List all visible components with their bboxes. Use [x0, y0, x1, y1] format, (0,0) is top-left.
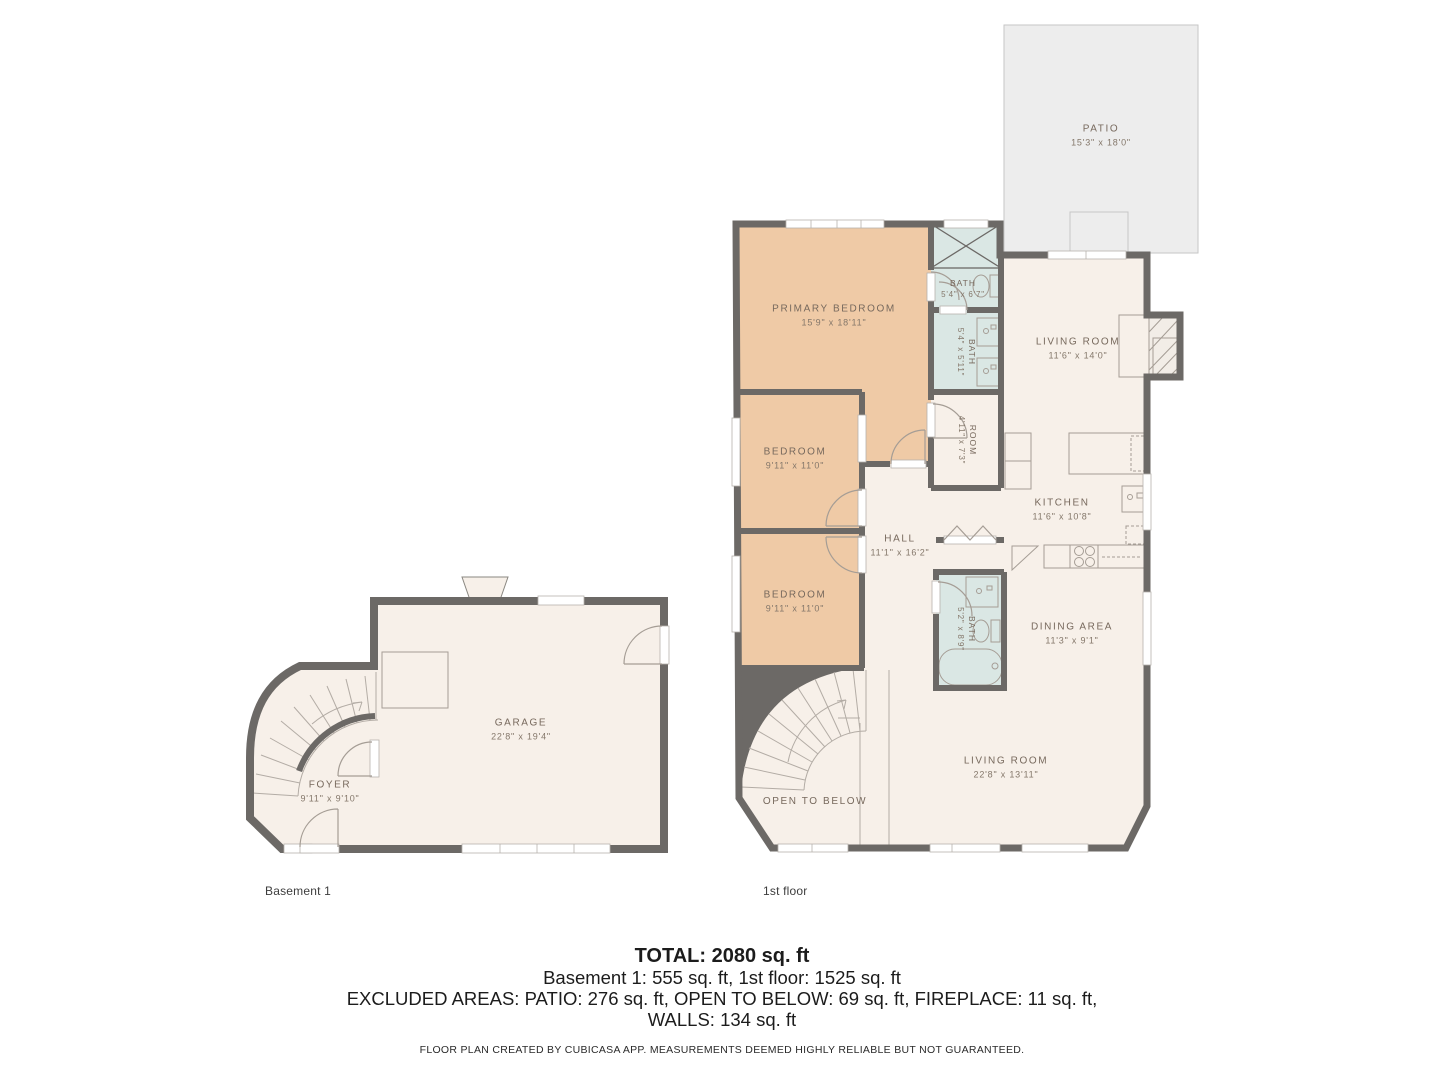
room-name: OPEN TO BELOW	[763, 796, 867, 807]
room-name: BATH	[967, 616, 977, 642]
label-bath-mid: BATH 5'4" x 5'11"	[955, 328, 977, 376]
label-bedroom-low: BEDROOM 9'11" x 11'0"	[764, 590, 827, 615]
room-dims: 5'4" x 6'7"	[941, 290, 985, 300]
label-bath-top: BATH 5'4" x 6'7"	[941, 278, 985, 300]
room-dims: 11'6" x 14'0"	[1036, 350, 1120, 361]
label-garage: GARAGE 22'8" x 19'4"	[491, 718, 551, 743]
room-dims: 9'11" x 11'0"	[764, 460, 827, 471]
summary-footnote: FLOOR PLAN CREATED BY CUBICASA APP. MEAS…	[0, 1044, 1440, 1056]
room-name: KITCHEN	[1034, 498, 1089, 509]
room-name: BEDROOM	[764, 447, 827, 458]
caption-first-floor: 1st floor	[763, 884, 808, 898]
room-dims: 15'3" x 18'0"	[1071, 137, 1131, 148]
label-dining: DINING AREA 11'3" x 9'1"	[1031, 622, 1113, 647]
chimney-shape	[462, 577, 508, 600]
summary-total: TOTAL: 2080 sq. ft	[0, 945, 1440, 967]
label-primary-bedroom: PRIMARY BEDROOM 15'9" x 18'11"	[772, 304, 896, 329]
label-kitchen: KITCHEN 11'6" x 10'8"	[1032, 498, 1091, 523]
summary-excluded-line: EXCLUDED AREAS: PATIO: 276 sq. ft, OPEN …	[0, 988, 1440, 1009]
room-name: FOYER	[309, 780, 351, 791]
room-name: GARAGE	[495, 718, 547, 729]
label-open-to-below: OPEN TO BELOW	[763, 796, 867, 809]
room-name: ROOM	[968, 425, 978, 455]
label-patio: PATIO 15'3" x 18'0"	[1071, 124, 1131, 149]
room-dims: 5'2" x 8'9"	[955, 607, 965, 651]
room-name: BATH	[967, 339, 977, 365]
caption-basement: Basement 1	[265, 884, 331, 898]
room-dims: 11'3" x 9'1"	[1031, 635, 1113, 646]
patio-step	[1070, 212, 1128, 253]
room-name: HALL	[884, 534, 915, 545]
room-dims: 5'4" x 5'11"	[955, 328, 965, 376]
floorplan-drawing	[0, 0, 1440, 1080]
room-dims: 11'1" x 16'2"	[870, 547, 929, 558]
area-summary: TOTAL: 2080 sq. ft Basement 1: 555 sq. f…	[0, 945, 1440, 1056]
label-living-room-upper: LIVING ROOM 11'6" x 14'0"	[1036, 337, 1120, 362]
label-hall: HALL 11'1" x 16'2"	[870, 534, 929, 559]
room-dims: 9'11" x 11'0"	[764, 603, 827, 614]
floorplan-page: PATIO 15'3" x 18'0" PRIMARY BEDROOM 15'9…	[0, 0, 1440, 1080]
suite-corridor-fill	[862, 392, 931, 464]
room-name: PATIO	[1083, 124, 1120, 135]
cased-opening	[858, 415, 866, 462]
label-bath-low: BATH 5'2" x 8'9"	[955, 607, 977, 651]
room-name: PRIMARY BEDROOM	[772, 304, 896, 315]
room-dims: 11'6" x 10'8"	[1032, 511, 1091, 522]
room-dims: 22'8" x 13'11"	[964, 769, 1048, 780]
room-dims: 9'11" x 9'10"	[300, 793, 359, 804]
label-living-room-lower: LIVING ROOM 22'8" x 13'11"	[964, 756, 1048, 781]
room-name: DINING AREA	[1031, 622, 1113, 633]
room-name: LIVING ROOM	[964, 756, 1048, 767]
label-room: ROOM 4'11" x 7'3"	[956, 416, 978, 464]
room-dims: 4'11" x 7'3"	[956, 416, 966, 464]
label-foyer: FOYER 9'11" x 9'10"	[300, 780, 359, 805]
summary-walls-line: WALLS: 134 sq. ft	[0, 1009, 1440, 1030]
basement-fill	[250, 601, 664, 849]
room-name: LIVING ROOM	[1036, 337, 1120, 348]
label-bedroom-mid: BEDROOM 9'11" x 11'0"	[764, 447, 827, 472]
summary-floors-line: Basement 1: 555 sq. ft, 1st floor: 1525 …	[0, 967, 1440, 988]
room-dims: 15'9" x 18'11"	[772, 317, 896, 328]
room-name: BEDROOM	[764, 590, 827, 601]
room-dims: 22'8" x 19'4"	[491, 731, 551, 742]
room-name: BATH	[950, 278, 976, 288]
